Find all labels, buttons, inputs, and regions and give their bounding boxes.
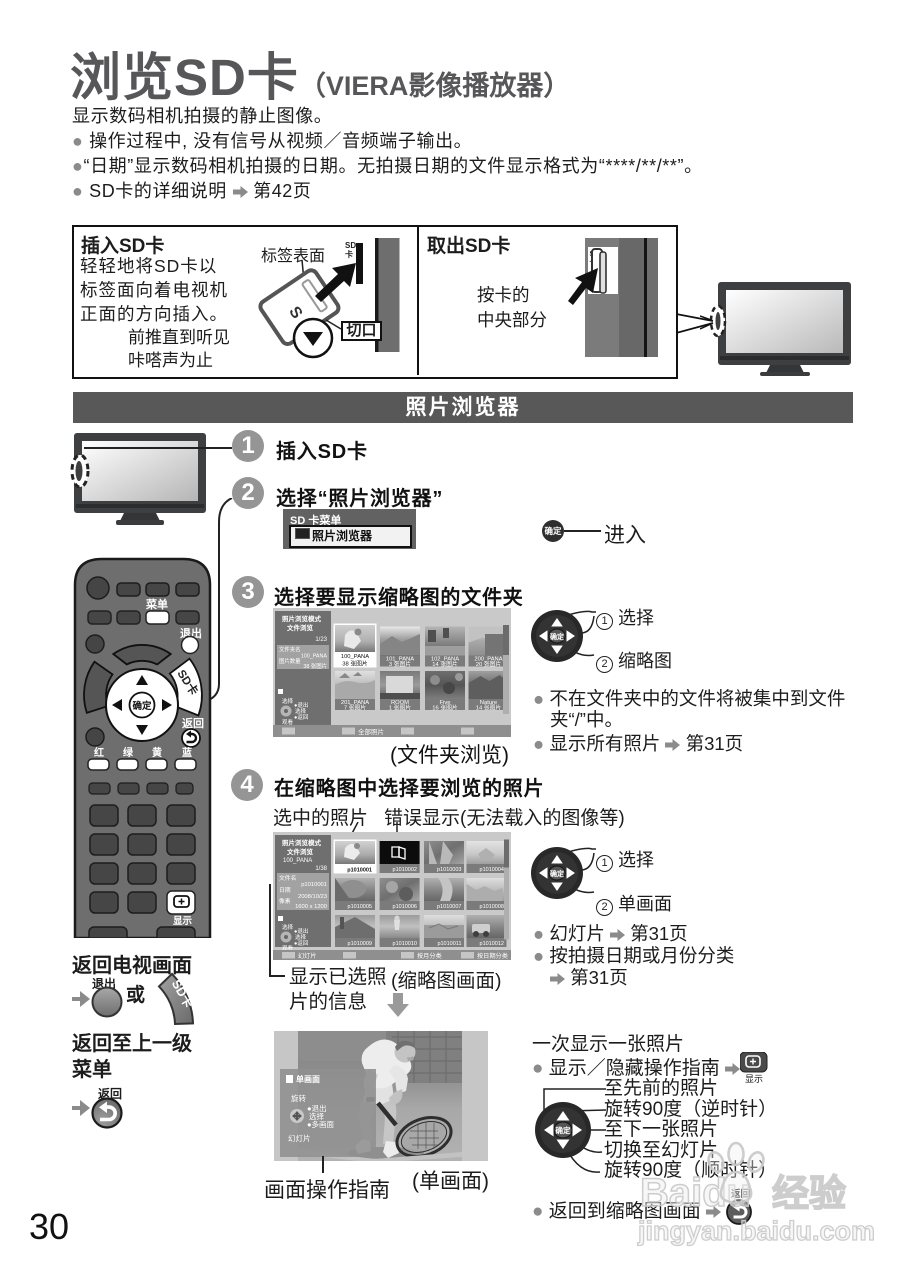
svg-text:绿: 绿	[123, 746, 134, 759]
svg-text:p1010004: p1010004	[480, 867, 504, 873]
svg-text:幻灯片: 幻灯片	[288, 1133, 311, 1143]
svg-text:●返回: ●返回	[294, 714, 309, 721]
svg-text:14 张图片: 14 张图片	[476, 704, 502, 712]
svg-text:确定: 确定	[556, 1125, 571, 1135]
svg-text:观看: 观看	[282, 718, 294, 726]
svg-text:菜单: 菜单	[145, 597, 168, 611]
svg-text:●退出: ●退出	[294, 927, 308, 935]
svg-text:38 张图片: 38 张图片	[303, 662, 327, 670]
svg-text:100_PANA: 100_PANA	[301, 654, 328, 660]
svg-text:确定: 确定	[550, 869, 564, 878]
svg-text:照片浏览模式: 照片浏览模式	[282, 838, 322, 847]
svg-text:1600 x 1200: 1600 x 1200	[295, 904, 327, 910]
svg-text:按日期分类: 按日期分类	[477, 952, 508, 960]
svg-text:100_PANA: 100_PANA	[283, 858, 312, 864]
svg-text:确定: 确定	[132, 700, 152, 712]
svg-text:16 张图片: 16 张图片	[432, 704, 458, 712]
svg-text:全部照片: 全部照片	[358, 727, 384, 736]
svg-text:文件浏览: 文件浏览	[286, 847, 314, 856]
svg-text:幻灯片: 幻灯片	[298, 952, 317, 960]
svg-text:文件名: 文件名	[279, 874, 296, 882]
svg-text:文件浏览: 文件浏览	[286, 623, 314, 632]
svg-text:38 张图片: 38 张图片	[342, 660, 368, 668]
svg-text:1/23: 1/23	[315, 637, 327, 643]
svg-text:p1010002: p1010002	[393, 867, 417, 873]
svg-text:14 张图片: 14 张图片	[432, 660, 458, 668]
svg-text:文件夹名: 文件夹名	[279, 646, 301, 654]
svg-text:7 张图片: 7 张图片	[344, 704, 366, 712]
svg-text:p1010006: p1010006	[393, 904, 417, 910]
svg-text:红: 红	[94, 746, 104, 759]
svg-text:卡: 卡	[345, 249, 353, 259]
svg-text:3 张图片: 3 张图片	[389, 660, 411, 668]
svg-text:p1010001: p1010001	[301, 882, 327, 888]
svg-text:SD: SD	[345, 241, 356, 250]
svg-text:1/38: 1/38	[315, 866, 327, 872]
svg-text:1 张图片: 1 张图片	[389, 704, 411, 712]
svg-text:p1010012: p1010012	[480, 941, 504, 947]
svg-text:按月分类: 按月分类	[417, 952, 442, 960]
svg-text:100_PANA: 100_PANA	[341, 654, 369, 660]
svg-text:图片数量: 图片数量	[279, 657, 301, 665]
svg-text:●多画面: ●多画面	[307, 1119, 335, 1129]
svg-text:单画面: 单画面	[296, 1074, 320, 1084]
svg-text:返回: 返回	[182, 716, 204, 730]
svg-text:蓝: 蓝	[182, 746, 192, 759]
svg-text:选择: 选择	[295, 707, 307, 715]
svg-text:p1010007: p1010007	[437, 904, 461, 910]
svg-text:●返回: ●返回	[294, 940, 309, 947]
svg-text:p1010008: p1010008	[480, 904, 504, 910]
svg-text:jingyan.baidu.com: jingyan.baidu.com	[637, 1216, 875, 1246]
svg-text:p1010009: p1010009	[348, 941, 372, 947]
svg-text:选择: 选择	[295, 933, 307, 941]
svg-text:黄: 黄	[152, 746, 162, 759]
svg-text:2008/10/23: 2008/10/23	[298, 894, 327, 900]
svg-text:确定: 确定	[550, 632, 564, 641]
svg-text:照片浏览模式: 照片浏览模式	[282, 614, 322, 623]
svg-text:p1010010: p1010010	[393, 941, 417, 947]
svg-text:经验: 经验	[772, 1173, 846, 1214]
svg-text:●退出: ●退出	[294, 701, 308, 709]
svg-text:显示: 显示	[173, 916, 193, 927]
svg-text:选择: 选择	[282, 697, 294, 705]
svg-text:旋转: 旋转	[291, 1093, 306, 1103]
svg-text:p1010003: p1010003	[437, 867, 461, 873]
svg-text:p1010005: p1010005	[348, 904, 372, 910]
svg-text:p1010011: p1010011	[437, 941, 461, 947]
svg-text:20 张图片: 20 张图片	[476, 660, 502, 668]
svg-text:p1010001: p1010001	[347, 868, 372, 874]
